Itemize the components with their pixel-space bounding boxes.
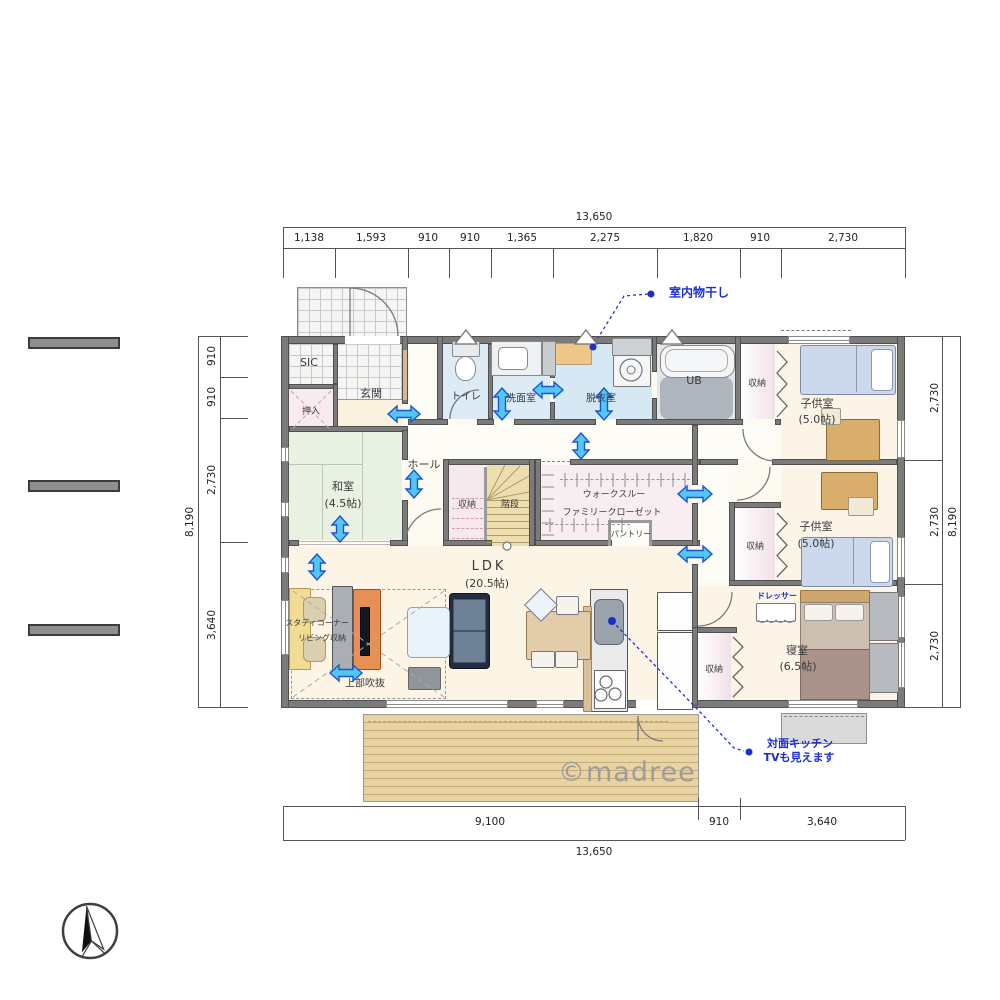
- wall: [437, 336, 443, 419]
- wall: [775, 419, 781, 425]
- wall: [535, 540, 612, 546]
- kitchen-stove: [594, 670, 626, 709]
- wall: [700, 459, 738, 465]
- annotation-dresser: ドレッサー: [757, 593, 797, 602]
- dimension-tick: [740, 248, 741, 278]
- bathtub-inner: [665, 349, 728, 372]
- room-label-ldk-size: (20.5帖): [465, 578, 509, 590]
- wall: [402, 430, 408, 460]
- stair-closet-shelf: [452, 498, 483, 499]
- dimension-label: 9,100: [475, 816, 505, 828]
- window-glass-line: [537, 704, 563, 705]
- vanity-basin: [498, 347, 528, 370]
- corridor-floor: [408, 425, 692, 459]
- dresser: [756, 603, 796, 622]
- dimension-tick: [740, 798, 741, 820]
- stair-closet-shelf: [452, 538, 483, 539]
- dimension-label: 8,190: [947, 507, 959, 537]
- dimension-label: 910: [418, 232, 438, 244]
- room-label-wtc-line1: ウォークスルー: [583, 491, 646, 501]
- wall-thin: [608, 520, 652, 523]
- dimension-line: [220, 336, 221, 708]
- toilet-tank: [452, 341, 480, 357]
- room-label-genkan: 玄関: [360, 388, 382, 400]
- room-label-kids2-size: (5.0帖): [797, 538, 834, 550]
- corridor-floor: [698, 425, 775, 459]
- dimension-tick: [905, 227, 906, 278]
- site-boundary-bar: [28, 337, 120, 349]
- pillow: [870, 541, 890, 583]
- dimension-label: 2,275: [590, 232, 620, 244]
- dimension-line: [198, 336, 199, 708]
- wall: [289, 426, 408, 432]
- entrance-porch: [297, 287, 407, 337]
- room-label-kids2-name: 子供室: [800, 521, 833, 533]
- wall: [692, 627, 737, 633]
- wall: [729, 502, 781, 508]
- sliding-door-track: [299, 544, 390, 545]
- wall: [333, 384, 338, 432]
- dimension-tick: [335, 248, 336, 278]
- dimension-tick: [905, 460, 942, 461]
- dimension-tick: [905, 806, 906, 840]
- room-label-wtc-line2: ファミリークローゼット: [562, 509, 661, 519]
- wall: [443, 459, 535, 465]
- sliding-door-track: [299, 541, 390, 542]
- room-label-kids1-size: (5.0帖): [798, 414, 835, 426]
- dimension-line: [283, 227, 905, 228]
- dimension-tick: [905, 336, 960, 337]
- dimension-label: 13,650: [576, 211, 613, 223]
- dimension-tick: [698, 798, 699, 820]
- room-label-oshiire: 押入: [302, 408, 320, 418]
- hanger-rail: [560, 479, 690, 480]
- tatami-line: [322, 465, 323, 540]
- dimension-label: 1,593: [356, 232, 386, 244]
- room-label-bedroom-name: 寝室: [786, 645, 808, 657]
- stair-tread: [487, 528, 529, 529]
- dimension-tick: [408, 248, 409, 278]
- pillow: [835, 604, 864, 621]
- dimension-tick: [449, 248, 450, 278]
- sofa-cushion: [453, 599, 486, 631]
- dimension-label: 2,730: [828, 232, 858, 244]
- corridor-floor: [698, 465, 729, 580]
- wall: [735, 336, 741, 425]
- wall: [514, 419, 596, 425]
- genkan-hall-door-panel: [403, 350, 407, 400]
- site-boundary-bar: [28, 480, 120, 492]
- dimension-tick: [553, 248, 554, 278]
- room-label-hall: ホール: [408, 459, 441, 471]
- wall-thin: [484, 467, 487, 540]
- bed-sheet-line: [853, 538, 854, 584]
- room-label-closet-bedroom: 収納: [705, 666, 723, 676]
- dimension-label: 1,138: [294, 232, 324, 244]
- dimension-label: 3,640: [206, 610, 218, 640]
- room-label-study-corner: スタディコーナー: [285, 620, 348, 629]
- window-glass-line: [285, 448, 286, 461]
- room-label-ldk-name: LDK: [472, 560, 507, 574]
- dimension-label: 8,190: [184, 507, 196, 537]
- dimension-label: 910: [206, 346, 218, 366]
- wall: [616, 419, 743, 425]
- washing-machine: [613, 355, 651, 387]
- dimension-line: [960, 336, 961, 708]
- pillow: [804, 604, 833, 621]
- kitchen-sink: [594, 599, 624, 645]
- wall: [333, 344, 338, 384]
- room-label-closet-stairs: 収納: [458, 501, 476, 511]
- dimension-tick: [220, 542, 248, 543]
- bedside-table: [869, 643, 899, 693]
- dimension-tick: [283, 806, 284, 840]
- bed-sheet-line: [856, 346, 857, 392]
- tatami-line: [289, 464, 363, 465]
- dimension-tick: [220, 418, 248, 419]
- dimension-label: 2,730: [929, 507, 941, 537]
- wall: [570, 459, 700, 465]
- vanity-cabinet: [542, 341, 556, 376]
- pillow: [871, 349, 893, 391]
- drying-shelf: [555, 343, 592, 365]
- tv: [360, 607, 370, 656]
- wall: [390, 540, 408, 546]
- wall: [535, 459, 541, 546]
- room-label-senmen: 洗面室: [506, 394, 536, 405]
- window-glass-line: [387, 704, 507, 705]
- annotation-kitchen-line1: 対面キッチン: [767, 738, 833, 750]
- dimension-tick: [905, 584, 942, 585]
- wall: [443, 459, 449, 546]
- wall: [289, 384, 338, 389]
- annotation-indoor-drying: 室内物干し: [669, 286, 729, 299]
- toilet-bowl: [455, 356, 476, 381]
- room-label-toilet: トイレ: [451, 392, 481, 403]
- dimension-line: [283, 840, 905, 841]
- window-glass-line: [789, 340, 849, 341]
- chair: [848, 497, 874, 516]
- terrace-overhang-line: [784, 716, 864, 717]
- dimension-label: 1,820: [683, 232, 713, 244]
- window-glass-line: [901, 597, 902, 637]
- dimension-line: [283, 806, 905, 807]
- room-label-closet-kids2: 収納: [746, 543, 764, 553]
- wall: [729, 502, 735, 586]
- window-glass-line: [285, 503, 286, 516]
- window-glass-line: [285, 558, 286, 572]
- wall: [652, 336, 657, 372]
- dimension-tick: [905, 707, 960, 708]
- wall: [408, 419, 448, 425]
- hall-floor: [408, 344, 437, 425]
- dining-chair: [556, 596, 579, 615]
- dimension-tick: [198, 336, 248, 337]
- dimension-tick: [781, 248, 782, 278]
- room-label-closet-kids1: 収納: [748, 380, 766, 390]
- dining-chair: [555, 651, 578, 668]
- tatami-line: [362, 432, 363, 540]
- dimension-label: 2,730: [929, 631, 941, 661]
- window-glass-line: [789, 704, 857, 705]
- dimension-line: [283, 248, 905, 249]
- dimension-label: 910: [460, 232, 480, 244]
- entrance-door-opening: [345, 336, 400, 344]
- room-label-datsui: 脱衣室: [586, 394, 616, 405]
- room-label-ub: UB: [686, 375, 702, 387]
- dimension-label: 3,640: [807, 816, 837, 828]
- window-glass-line: [901, 421, 902, 457]
- room-label-stairs: 階段: [501, 501, 519, 511]
- dimension-label: 910: [206, 387, 218, 407]
- dimension-tick: [283, 227, 284, 278]
- dimension-label: 910: [750, 232, 770, 244]
- ottoman: [408, 667, 441, 690]
- dimension-tick: [220, 377, 248, 378]
- hanger-rail: [545, 524, 630, 525]
- watermark: ©madree: [558, 757, 696, 788]
- window-glass-line: [901, 538, 902, 577]
- room-label-pantry: パントリー: [611, 531, 651, 540]
- room-label-kids1-name: 子供室: [801, 398, 834, 410]
- dimension-label: 2,730: [929, 383, 941, 413]
- refrigerator-space: [657, 632, 693, 710]
- laundry-counter: [612, 338, 652, 356]
- stair-tread: [487, 535, 529, 536]
- cupboard: [657, 592, 693, 631]
- window-glass-line: [901, 643, 902, 687]
- stair-closet-shelf: [452, 528, 483, 529]
- stair-tread: [487, 521, 529, 522]
- dimension-tick: [198, 707, 248, 708]
- dimension-label: 13,650: [576, 846, 613, 858]
- double-bed-lower: [800, 649, 870, 700]
- dimension-label: 2,730: [206, 465, 218, 495]
- wall: [443, 540, 492, 546]
- genkan-step: [335, 399, 402, 426]
- dining-chair: [531, 651, 555, 668]
- room-label-washitsu-size: (4.5帖): [324, 498, 361, 510]
- stair-closet-shelf: [452, 518, 483, 519]
- wall: [477, 419, 494, 425]
- window-marker-line: [781, 330, 851, 331]
- stair-tread: [487, 514, 529, 515]
- wtc-entry-line: [537, 461, 570, 462]
- bedside-table: [869, 592, 899, 641]
- room-label-sic: SIC: [300, 357, 318, 369]
- stair-tread: [487, 542, 529, 543]
- coffee-table: [407, 607, 450, 658]
- dimension-tick: [657, 248, 658, 278]
- dimension-tick: [491, 248, 492, 278]
- site-boundary-bar: [28, 624, 120, 636]
- dimension-label: 1,365: [507, 232, 537, 244]
- room-label-bedroom-size: (6.5帖): [779, 661, 816, 673]
- wall: [692, 425, 698, 485]
- deck-overhang-line: [368, 721, 668, 722]
- room-label-living-storage: リビング収納: [298, 635, 346, 644]
- floor-plan-page: SIC 玄関 押入 トイレ 洗面室 脱衣室 UB ホール 収納 子供室 (5.0…: [0, 0, 1000, 1000]
- wall: [692, 503, 698, 546]
- room-label-washitsu-name: 和室: [332, 481, 354, 493]
- wall: [289, 540, 299, 546]
- room-label-void: 上部吹抜: [345, 679, 385, 690]
- annotation-kitchen-line2: TVも見えます: [763, 752, 834, 764]
- sofa-cushion: [453, 631, 486, 663]
- dimension-line: [942, 336, 943, 708]
- dimension-label: 910: [709, 816, 729, 828]
